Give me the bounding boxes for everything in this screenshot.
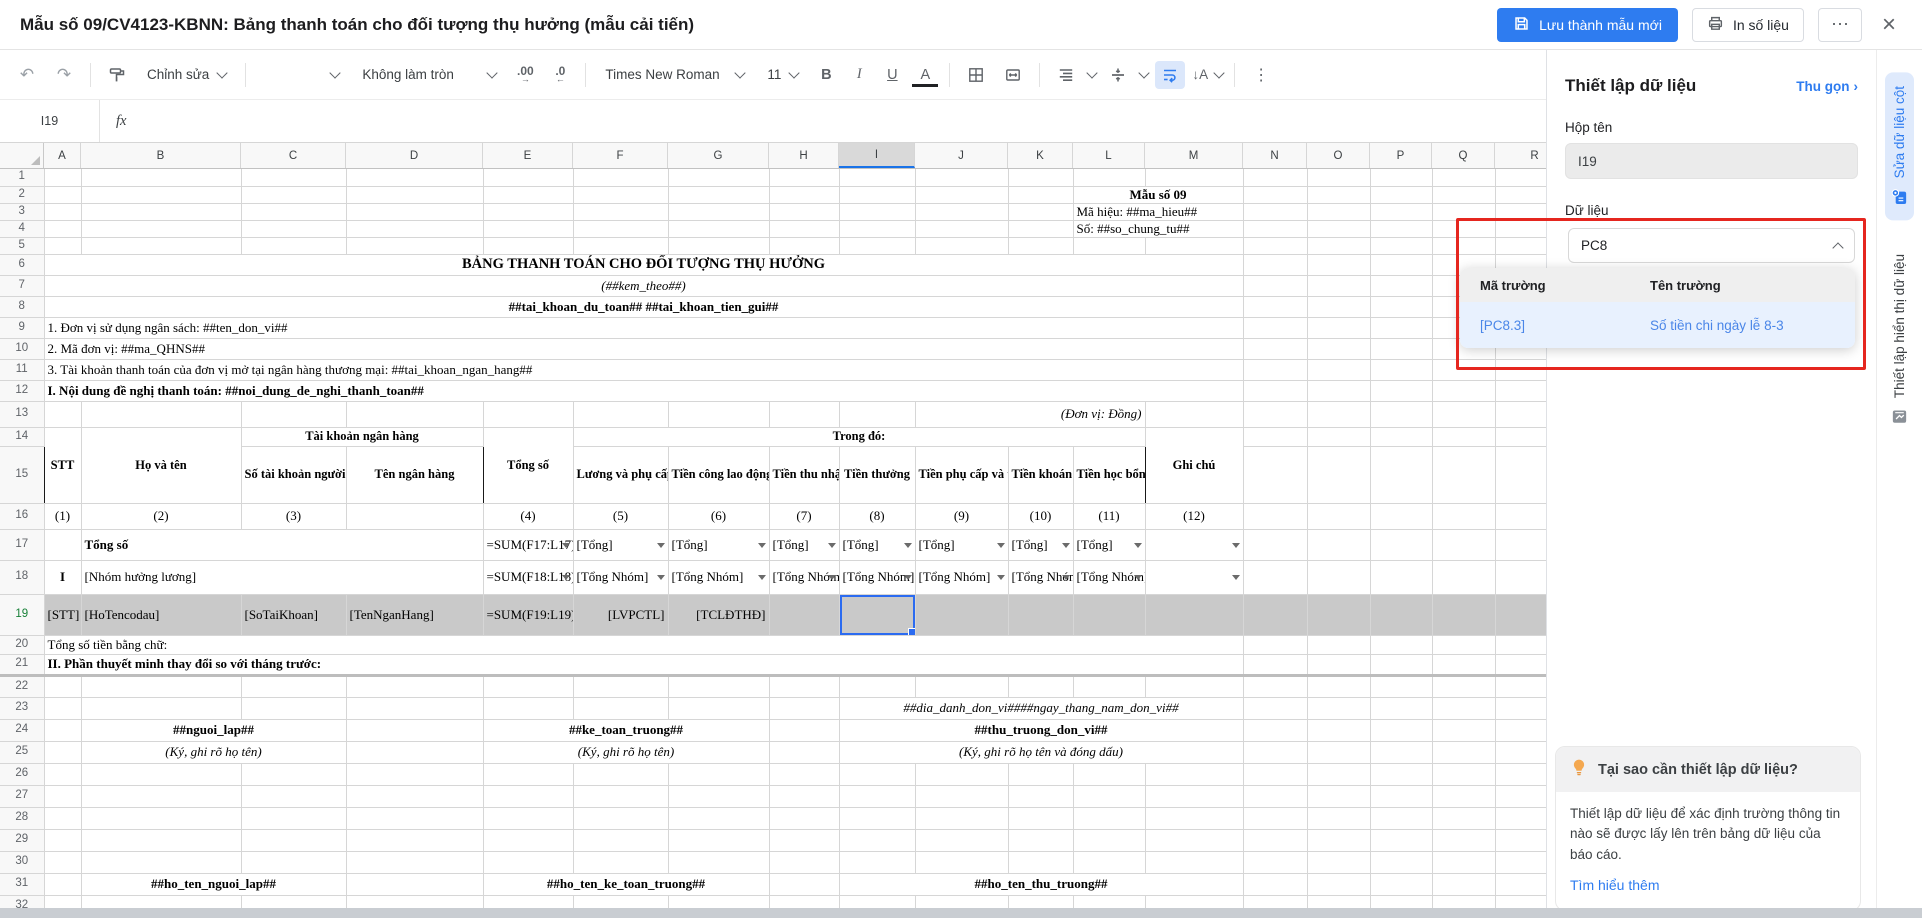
cell-D26[interactable] xyxy=(346,763,483,785)
row-header-12[interactable]: 12 xyxy=(0,380,44,401)
cell-K26[interactable] xyxy=(1008,763,1073,785)
cell-A4[interactable] xyxy=(44,220,81,237)
row-header-18[interactable]: 18 xyxy=(0,560,44,594)
more-actions-button[interactable]: ⋯ xyxy=(1818,8,1862,42)
cell-K5[interactable] xyxy=(1008,237,1073,254)
cell-G30[interactable] xyxy=(668,851,769,873)
column-header-M[interactable]: M xyxy=(1145,143,1243,168)
cell-O1[interactable] xyxy=(1307,169,1370,186)
cell-N19[interactable] xyxy=(1243,594,1307,635)
cell-R21[interactable] xyxy=(1495,654,1546,675)
cell-dropdown-arrow[interactable] xyxy=(904,575,912,580)
edit-mode-dropdown[interactable]: Chỉnh sửa xyxy=(139,60,234,90)
cell-I31[interactable]: ##ho_ten_thu_truong## xyxy=(839,873,1243,895)
cell-J29[interactable] xyxy=(915,829,1008,851)
cell-I16[interactable]: (8) xyxy=(839,503,915,529)
cell-J19[interactable] xyxy=(915,594,1008,635)
cell-O5[interactable] xyxy=(1307,237,1370,254)
cell-E1[interactable] xyxy=(483,169,573,186)
cell-D30[interactable] xyxy=(346,851,483,873)
cell-L2[interactable]: Mẫu số 09 xyxy=(1073,186,1243,203)
collapse-link[interactable]: Thu gọn › xyxy=(1796,79,1858,94)
cell-P12[interactable] xyxy=(1370,380,1432,401)
cell-I26[interactable] xyxy=(839,763,915,785)
row-header-24[interactable]: 24 xyxy=(0,719,44,741)
cell-Q16[interactable] xyxy=(1432,503,1495,529)
cell-L3[interactable]: Mã hiệu: ##ma_hieu## xyxy=(1073,203,1243,220)
cell-B1[interactable] xyxy=(81,169,241,186)
cell-K3[interactable] xyxy=(1008,203,1073,220)
cell-C3[interactable] xyxy=(241,203,346,220)
cell-N30[interactable] xyxy=(1243,851,1307,873)
cell-H4[interactable] xyxy=(769,220,839,237)
cell-L19[interactable] xyxy=(1073,594,1145,635)
cell-H17[interactable]: [Tổng] xyxy=(769,529,839,560)
cell-M13[interactable] xyxy=(1145,401,1243,427)
cell-B13[interactable] xyxy=(81,401,241,427)
cell-E19[interactable]: =SUM(F19:L19) xyxy=(483,594,573,635)
row-header-10[interactable]: 10 xyxy=(0,338,44,359)
cell-P26[interactable] xyxy=(1370,763,1432,785)
cell-H31[interactable] xyxy=(769,873,839,895)
cell-C14[interactable]: Tài khoản ngân hàng xyxy=(241,427,483,446)
cell-E30[interactable] xyxy=(483,851,573,873)
cell-O9[interactable] xyxy=(1307,317,1370,338)
cell-F4[interactable] xyxy=(573,220,668,237)
decrease-decimal-icon[interactable]: .0 ← xyxy=(546,67,574,83)
number-format-dropdown[interactable] xyxy=(257,60,347,90)
cell-K30[interactable] xyxy=(1008,851,1073,873)
cell-R30[interactable] xyxy=(1495,851,1546,873)
cell-P6[interactable] xyxy=(1370,254,1432,275)
cell-A3[interactable] xyxy=(44,203,81,220)
cell-N23[interactable] xyxy=(1243,697,1307,719)
cell-B29[interactable] xyxy=(81,829,241,851)
cell-dropdown-arrow[interactable] xyxy=(1134,543,1142,548)
cell-D22[interactable] xyxy=(346,675,483,697)
cell-K18[interactable]: [Tổng Nhóm] xyxy=(1008,560,1073,594)
cell-A16[interactable]: (1) xyxy=(44,503,81,529)
cell-G19[interactable]: [TCLĐTHĐ] xyxy=(668,594,769,635)
borders-icon[interactable] xyxy=(961,60,991,90)
cell-F23[interactable] xyxy=(573,697,668,719)
cell-F19[interactable]: [LVPCTL] xyxy=(573,594,668,635)
cell-C16[interactable]: (3) xyxy=(241,503,346,529)
column-header-L[interactable]: L xyxy=(1073,143,1145,168)
cell-G26[interactable] xyxy=(668,763,769,785)
column-header-C[interactable]: C xyxy=(241,143,346,168)
cell-Q21[interactable] xyxy=(1432,654,1495,675)
cell-N14[interactable] xyxy=(1243,427,1307,446)
cell-E3[interactable] xyxy=(483,203,573,220)
text-rotation-icon[interactable]: ↓A xyxy=(1192,67,1208,82)
cell-C30[interactable] xyxy=(241,851,346,873)
cell-B31[interactable]: ##ho_ten_nguoi_lap## xyxy=(81,873,346,895)
cell-N11[interactable] xyxy=(1243,359,1307,380)
cell-F5[interactable] xyxy=(573,237,668,254)
cell-P21[interactable] xyxy=(1370,654,1432,675)
cell-G27[interactable] xyxy=(668,785,769,807)
cell-K17[interactable]: [Tổng] xyxy=(1008,529,1073,560)
cell-B26[interactable] xyxy=(81,763,241,785)
cell-A24[interactable] xyxy=(44,719,81,741)
column-header-R[interactable]: R xyxy=(1495,143,1546,168)
cell-Q1[interactable] xyxy=(1432,169,1495,186)
cell-N21[interactable] xyxy=(1243,654,1307,675)
cell-G15[interactable]: Tiền công lao động theo hợp đồng xyxy=(668,446,769,503)
cell-F15[interactable]: Lương và phụ cấp theo lương xyxy=(573,446,668,503)
cell-F2[interactable] xyxy=(573,186,668,203)
cell-Q3[interactable] xyxy=(1432,203,1495,220)
cell-H26[interactable] xyxy=(769,763,839,785)
cell-O29[interactable] xyxy=(1307,829,1370,851)
cell-D28[interactable] xyxy=(346,807,483,829)
cell-N10[interactable] xyxy=(1243,338,1307,359)
cell-J22[interactable] xyxy=(915,675,1008,697)
row-header-15[interactable]: 15 xyxy=(0,446,44,503)
cell-P31[interactable] xyxy=(1370,873,1432,895)
cell-A19[interactable]: [STT] xyxy=(44,594,81,635)
cell-N25[interactable] xyxy=(1243,741,1307,763)
row-header-31[interactable]: 31 xyxy=(0,873,44,895)
row-header-26[interactable]: 26 xyxy=(0,763,44,785)
column-header-J[interactable]: J xyxy=(915,143,1008,168)
cell-R19[interactable] xyxy=(1495,594,1546,635)
cell-M14[interactable]: Ghi chú xyxy=(1145,427,1243,503)
cell-D24[interactable] xyxy=(346,719,483,741)
cell-I2[interactable] xyxy=(839,186,915,203)
cell-B28[interactable] xyxy=(81,807,241,829)
cell-E24[interactable]: ##ke_toan_truong## xyxy=(483,719,769,741)
cell-D15[interactable]: Tên ngân hàng xyxy=(346,446,483,503)
cell-O8[interactable] xyxy=(1307,296,1370,317)
row-header-11[interactable]: 11 xyxy=(0,359,44,380)
cell-E23[interactable] xyxy=(483,697,573,719)
cell-R11[interactable] xyxy=(1495,359,1546,380)
cell-H1[interactable] xyxy=(769,169,839,186)
column-header-K[interactable]: K xyxy=(1008,143,1073,168)
cell-J13[interactable]: (Đơn vị: Đồng) xyxy=(915,401,1145,427)
cell-O19[interactable] xyxy=(1307,594,1370,635)
cell-N1[interactable] xyxy=(1243,169,1307,186)
data-field-select[interactable]: PC8 xyxy=(1568,228,1855,263)
cell-O18[interactable] xyxy=(1307,560,1370,594)
cell-dropdown-arrow[interactable] xyxy=(904,543,912,548)
cell-H24[interactable] xyxy=(769,719,839,741)
redo-icon[interactable]: ↷ xyxy=(49,60,79,90)
cell-F16[interactable]: (5) xyxy=(573,503,668,529)
cell-dropdown-arrow[interactable] xyxy=(657,575,665,580)
row-header-22[interactable]: 22 xyxy=(0,675,44,697)
cell-E31[interactable]: ##ho_ten_ke_toan_truong## xyxy=(483,873,769,895)
cell-I28[interactable] xyxy=(839,807,915,829)
cell-N29[interactable] xyxy=(1243,829,1307,851)
cell-J17[interactable]: [Tổng] xyxy=(915,529,1008,560)
cell-G2[interactable] xyxy=(668,186,769,203)
cell-K29[interactable] xyxy=(1008,829,1073,851)
cell-dropdown-arrow[interactable] xyxy=(997,543,1005,548)
cell-J28[interactable] xyxy=(915,807,1008,829)
cell-Q15[interactable] xyxy=(1432,446,1495,503)
cell-H29[interactable] xyxy=(769,829,839,851)
chevron-down-icon[interactable] xyxy=(1087,67,1098,78)
cell-A1[interactable] xyxy=(44,169,81,186)
cell-C5[interactable] xyxy=(241,237,346,254)
cell-G22[interactable] xyxy=(668,675,769,697)
cell-B23[interactable] xyxy=(81,697,241,719)
column-header-H[interactable]: H xyxy=(769,143,839,168)
cell-J27[interactable] xyxy=(915,785,1008,807)
cell-G5[interactable] xyxy=(668,237,769,254)
cell-G3[interactable] xyxy=(668,203,769,220)
cell-E29[interactable] xyxy=(483,829,573,851)
column-header-F[interactable]: F xyxy=(573,143,668,168)
cell-M26[interactable] xyxy=(1145,763,1243,785)
row-header-21[interactable]: 21 xyxy=(0,654,44,675)
cell-G16[interactable]: (6) xyxy=(668,503,769,529)
row-header-13[interactable]: 13 xyxy=(0,401,44,427)
row-header-5[interactable]: 5 xyxy=(0,237,44,254)
cell-B17[interactable]: Tổng số xyxy=(81,529,483,560)
cell-D4[interactable] xyxy=(346,220,483,237)
cell-M1[interactable] xyxy=(1145,169,1243,186)
font-size-dropdown[interactable]: 11 xyxy=(759,60,806,90)
cell-J18[interactable]: [Tổng Nhóm] xyxy=(915,560,1008,594)
cell-P15[interactable] xyxy=(1370,446,1432,503)
cell-L26[interactable] xyxy=(1073,763,1145,785)
cell-R5[interactable] xyxy=(1495,237,1546,254)
cell-H18[interactable]: [Tổng Nhóm] xyxy=(769,560,839,594)
cell-I18[interactable]: [Tổng Nhóm] xyxy=(839,560,915,594)
cell-Q18[interactable] xyxy=(1432,560,1495,594)
row-header-16[interactable]: 16 xyxy=(0,503,44,529)
cell-C15[interactable]: Số tài khoản người hưởng xyxy=(241,446,346,503)
cell-L30[interactable] xyxy=(1073,851,1145,873)
cell-C13[interactable] xyxy=(241,401,346,427)
row-header-19[interactable]: 19 xyxy=(0,594,44,635)
cell-P8[interactable] xyxy=(1370,296,1432,317)
cell-O30[interactable] xyxy=(1307,851,1370,873)
cell-Q13[interactable] xyxy=(1432,401,1495,427)
cell-D5[interactable] xyxy=(346,237,483,254)
cell-R3[interactable] xyxy=(1495,203,1546,220)
cell-Q28[interactable] xyxy=(1432,807,1495,829)
cell-A22[interactable] xyxy=(44,675,81,697)
cell-Q27[interactable] xyxy=(1432,785,1495,807)
cell-R29[interactable] xyxy=(1495,829,1546,851)
cell-N2[interactable] xyxy=(1243,186,1307,203)
row-header-6[interactable]: 6 xyxy=(0,254,44,275)
row-header-25[interactable]: 25 xyxy=(0,741,44,763)
cell-R22[interactable] xyxy=(1495,675,1546,697)
cell-M17[interactable] xyxy=(1145,529,1243,560)
cell-P19[interactable] xyxy=(1370,594,1432,635)
cell-H27[interactable] xyxy=(769,785,839,807)
cell-C1[interactable] xyxy=(241,169,346,186)
cell-H16[interactable]: (7) xyxy=(769,503,839,529)
column-header-O[interactable]: O xyxy=(1307,143,1370,168)
cell-A20[interactable]: Tổng số tiền bằng chữ: xyxy=(44,635,1243,654)
cell-I4[interactable] xyxy=(839,220,915,237)
cell-E17[interactable]: =SUM(F17:L17) xyxy=(483,529,573,560)
wrap-text-icon[interactable] xyxy=(1155,61,1185,89)
cell-M30[interactable] xyxy=(1145,851,1243,873)
cell-O26[interactable] xyxy=(1307,763,1370,785)
cell-dropdown-arrow[interactable] xyxy=(1134,575,1142,580)
cell-F22[interactable] xyxy=(573,675,668,697)
cell-O28[interactable] xyxy=(1307,807,1370,829)
cell-Q2[interactable] xyxy=(1432,186,1495,203)
cell-M28[interactable] xyxy=(1145,807,1243,829)
cell-G18[interactable]: [Tổng Nhóm] xyxy=(668,560,769,594)
cell-I24[interactable]: ##thu_truong_don_vi## xyxy=(839,719,1243,741)
cell-O27[interactable] xyxy=(1307,785,1370,807)
cell-O15[interactable] xyxy=(1307,446,1370,503)
cell-Q12[interactable] xyxy=(1432,380,1495,401)
cell-F1[interactable] xyxy=(573,169,668,186)
cell-N12[interactable] xyxy=(1243,380,1307,401)
cell-P14[interactable] xyxy=(1370,427,1432,446)
cell-dropdown-arrow[interactable] xyxy=(758,543,766,548)
cell-D13[interactable] xyxy=(346,401,483,427)
cell-B2[interactable] xyxy=(81,186,241,203)
chevron-down-icon[interactable] xyxy=(1213,67,1224,78)
cell-L22[interactable] xyxy=(1073,675,1145,697)
cell-Q17[interactable] xyxy=(1432,529,1495,560)
cell-E28[interactable] xyxy=(483,807,573,829)
cell-O7[interactable] xyxy=(1307,275,1370,296)
cell-K27[interactable] xyxy=(1008,785,1073,807)
cell-M19[interactable] xyxy=(1145,594,1243,635)
cell-Q24[interactable] xyxy=(1432,719,1495,741)
cell-I23[interactable]: ##dia_danh_don_vi####ngay_thang_nam_don_… xyxy=(839,697,1243,719)
cell-A26[interactable] xyxy=(44,763,81,785)
cell-dropdown-arrow[interactable] xyxy=(1062,575,1070,580)
font-family-dropdown[interactable]: Times New Roman xyxy=(597,60,752,90)
cell-K22[interactable] xyxy=(1008,675,1073,697)
cell-A9[interactable]: 1. Đơn vị sử dụng ngân sách: ##ten_don_v… xyxy=(44,317,1243,338)
cell-L28[interactable] xyxy=(1073,807,1145,829)
cell-dropdown-arrow[interactable] xyxy=(657,543,665,548)
cell-H2[interactable] xyxy=(769,186,839,203)
cell-R26[interactable] xyxy=(1495,763,1546,785)
cell-Q19[interactable] xyxy=(1432,594,1495,635)
cell-J4[interactable] xyxy=(915,220,1008,237)
cell-J2[interactable] xyxy=(915,186,1008,203)
cell-O14[interactable] xyxy=(1307,427,1370,446)
cell-F13[interactable] xyxy=(573,401,668,427)
cell-Q22[interactable] xyxy=(1432,675,1495,697)
cell-L4[interactable]: Số: ##so_chung_tu## xyxy=(1073,220,1243,237)
column-header-D[interactable]: D xyxy=(346,143,483,168)
cell-R31[interactable] xyxy=(1495,873,1546,895)
cell-O3[interactable] xyxy=(1307,203,1370,220)
rounding-dropdown[interactable]: Không làm tròn xyxy=(354,60,504,90)
cell-C19[interactable]: [SoTaiKhoan] xyxy=(241,594,346,635)
cell-D27[interactable] xyxy=(346,785,483,807)
cell-O16[interactable] xyxy=(1307,503,1370,529)
cell-P23[interactable] xyxy=(1370,697,1432,719)
cell-N6[interactable] xyxy=(1243,254,1307,275)
undo-icon[interactable]: ↶ xyxy=(12,60,42,90)
cell-E4[interactable] xyxy=(483,220,573,237)
cell-A18[interactable]: I xyxy=(44,560,81,594)
cell-R16[interactable] xyxy=(1495,503,1546,529)
cell-R15[interactable] xyxy=(1495,446,1546,503)
cell-P9[interactable] xyxy=(1370,317,1432,338)
cell-F30[interactable] xyxy=(573,851,668,873)
name-box[interactable]: I19 xyxy=(0,100,100,142)
cell-F17[interactable]: [Tổng] xyxy=(573,529,668,560)
cell-F3[interactable] xyxy=(573,203,668,220)
chevron-down-icon[interactable] xyxy=(1139,67,1150,78)
cell-O24[interactable] xyxy=(1307,719,1370,741)
cell-M27[interactable] xyxy=(1145,785,1243,807)
cell-Q11[interactable] xyxy=(1432,359,1495,380)
cell-M22[interactable] xyxy=(1145,675,1243,697)
row-header-9[interactable]: 9 xyxy=(0,317,44,338)
cell-dropdown-arrow[interactable] xyxy=(1232,575,1240,580)
cell-N7[interactable] xyxy=(1243,275,1307,296)
cell-N27[interactable] xyxy=(1243,785,1307,807)
vertical-align-icon[interactable] xyxy=(1103,60,1133,90)
cell-F27[interactable] xyxy=(573,785,668,807)
cell-Q29[interactable] xyxy=(1432,829,1495,851)
cell-B30[interactable] xyxy=(81,851,241,873)
cell-M5[interactable] xyxy=(1145,237,1243,254)
cell-I25[interactable]: (Ký, ghi rõ họ tên và đóng dấu) xyxy=(839,741,1243,763)
column-header-E[interactable]: E xyxy=(483,143,573,168)
print-data-button[interactable]: In số liệu xyxy=(1692,8,1804,42)
cell-D2[interactable] xyxy=(346,186,483,203)
cell-Q31[interactable] xyxy=(1432,873,1495,895)
cell-Q20[interactable] xyxy=(1432,635,1495,654)
row-header-23[interactable]: 23 xyxy=(0,697,44,719)
cell-C23[interactable] xyxy=(241,697,346,719)
merge-cells-icon[interactable] xyxy=(998,60,1028,90)
cell-L16[interactable]: (11) xyxy=(1073,503,1145,529)
cell-O31[interactable] xyxy=(1307,873,1370,895)
cell-R24[interactable] xyxy=(1495,719,1546,741)
cell-E25[interactable]: (Ký, ghi rõ họ tên) xyxy=(483,741,769,763)
column-header-A[interactable]: A xyxy=(44,143,81,168)
cell-dropdown-arrow[interactable] xyxy=(758,575,766,580)
cell-J15[interactable]: Tiền phụ cấp và trợ cấp khác xyxy=(915,446,1008,503)
cell-P2[interactable] xyxy=(1370,186,1432,203)
cell-R4[interactable] xyxy=(1495,220,1546,237)
cell-R17[interactable] xyxy=(1495,529,1546,560)
cell-H3[interactable] xyxy=(769,203,839,220)
cell-K4[interactable] xyxy=(1008,220,1073,237)
cell-B27[interactable] xyxy=(81,785,241,807)
cell-A12[interactable]: I. Nội dung đề nghị thanh toán: ##noi_du… xyxy=(44,380,1243,401)
cell-P20[interactable] xyxy=(1370,635,1432,654)
cell-O4[interactable] xyxy=(1307,220,1370,237)
cell-O20[interactable] xyxy=(1307,635,1370,654)
cell-dropdown-arrow[interactable] xyxy=(828,543,836,548)
cell-H30[interactable] xyxy=(769,851,839,873)
cell-A28[interactable] xyxy=(44,807,81,829)
cell-A27[interactable] xyxy=(44,785,81,807)
italic-button[interactable]: I xyxy=(846,61,872,89)
cell-A11[interactable]: 3. Tài khoản thanh toán của đơn vị mở tạ… xyxy=(44,359,1243,380)
cell-E27[interactable] xyxy=(483,785,573,807)
row-header-3[interactable]: 3 xyxy=(0,203,44,220)
cell-I17[interactable]: [Tổng] xyxy=(839,529,915,560)
cell-C26[interactable] xyxy=(241,763,346,785)
row-header-14[interactable]: 14 xyxy=(0,427,44,446)
cell-A10[interactable]: 2. Mã đơn vị: ##ma_QHNS## xyxy=(44,338,1243,359)
